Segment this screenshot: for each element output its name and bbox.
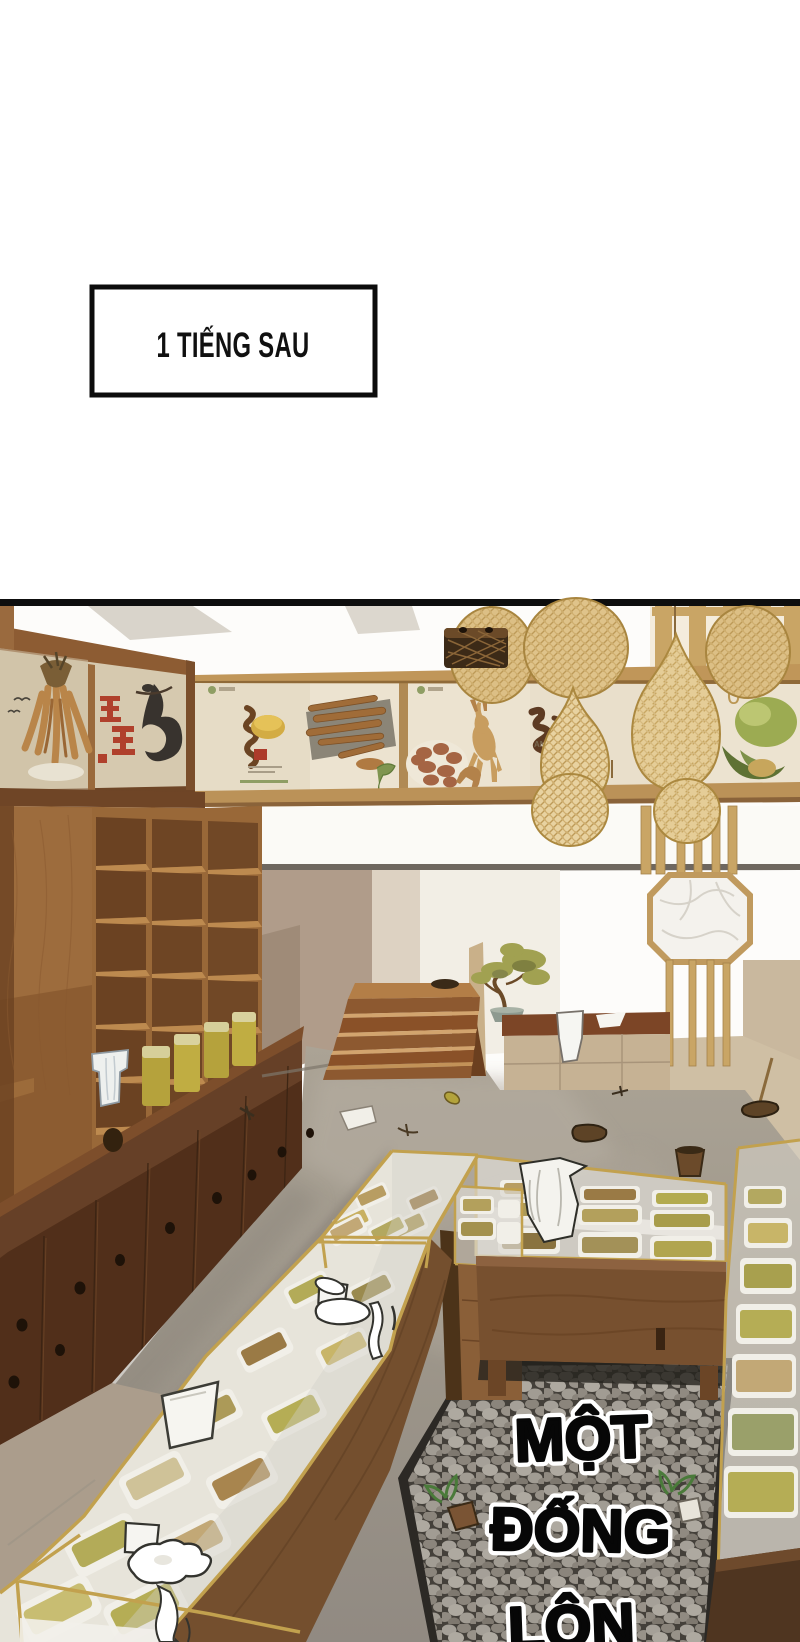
svg-text:MỘT: MỘT <box>513 1403 649 1475</box>
svg-text:LÔN: LÔN <box>507 1591 636 1642</box>
svg-text:ĐỐNG: ĐỐNG <box>490 1495 671 1565</box>
svg-text:1 TIẾNG SAU: 1 TIẾNG SAU <box>156 325 309 365</box>
